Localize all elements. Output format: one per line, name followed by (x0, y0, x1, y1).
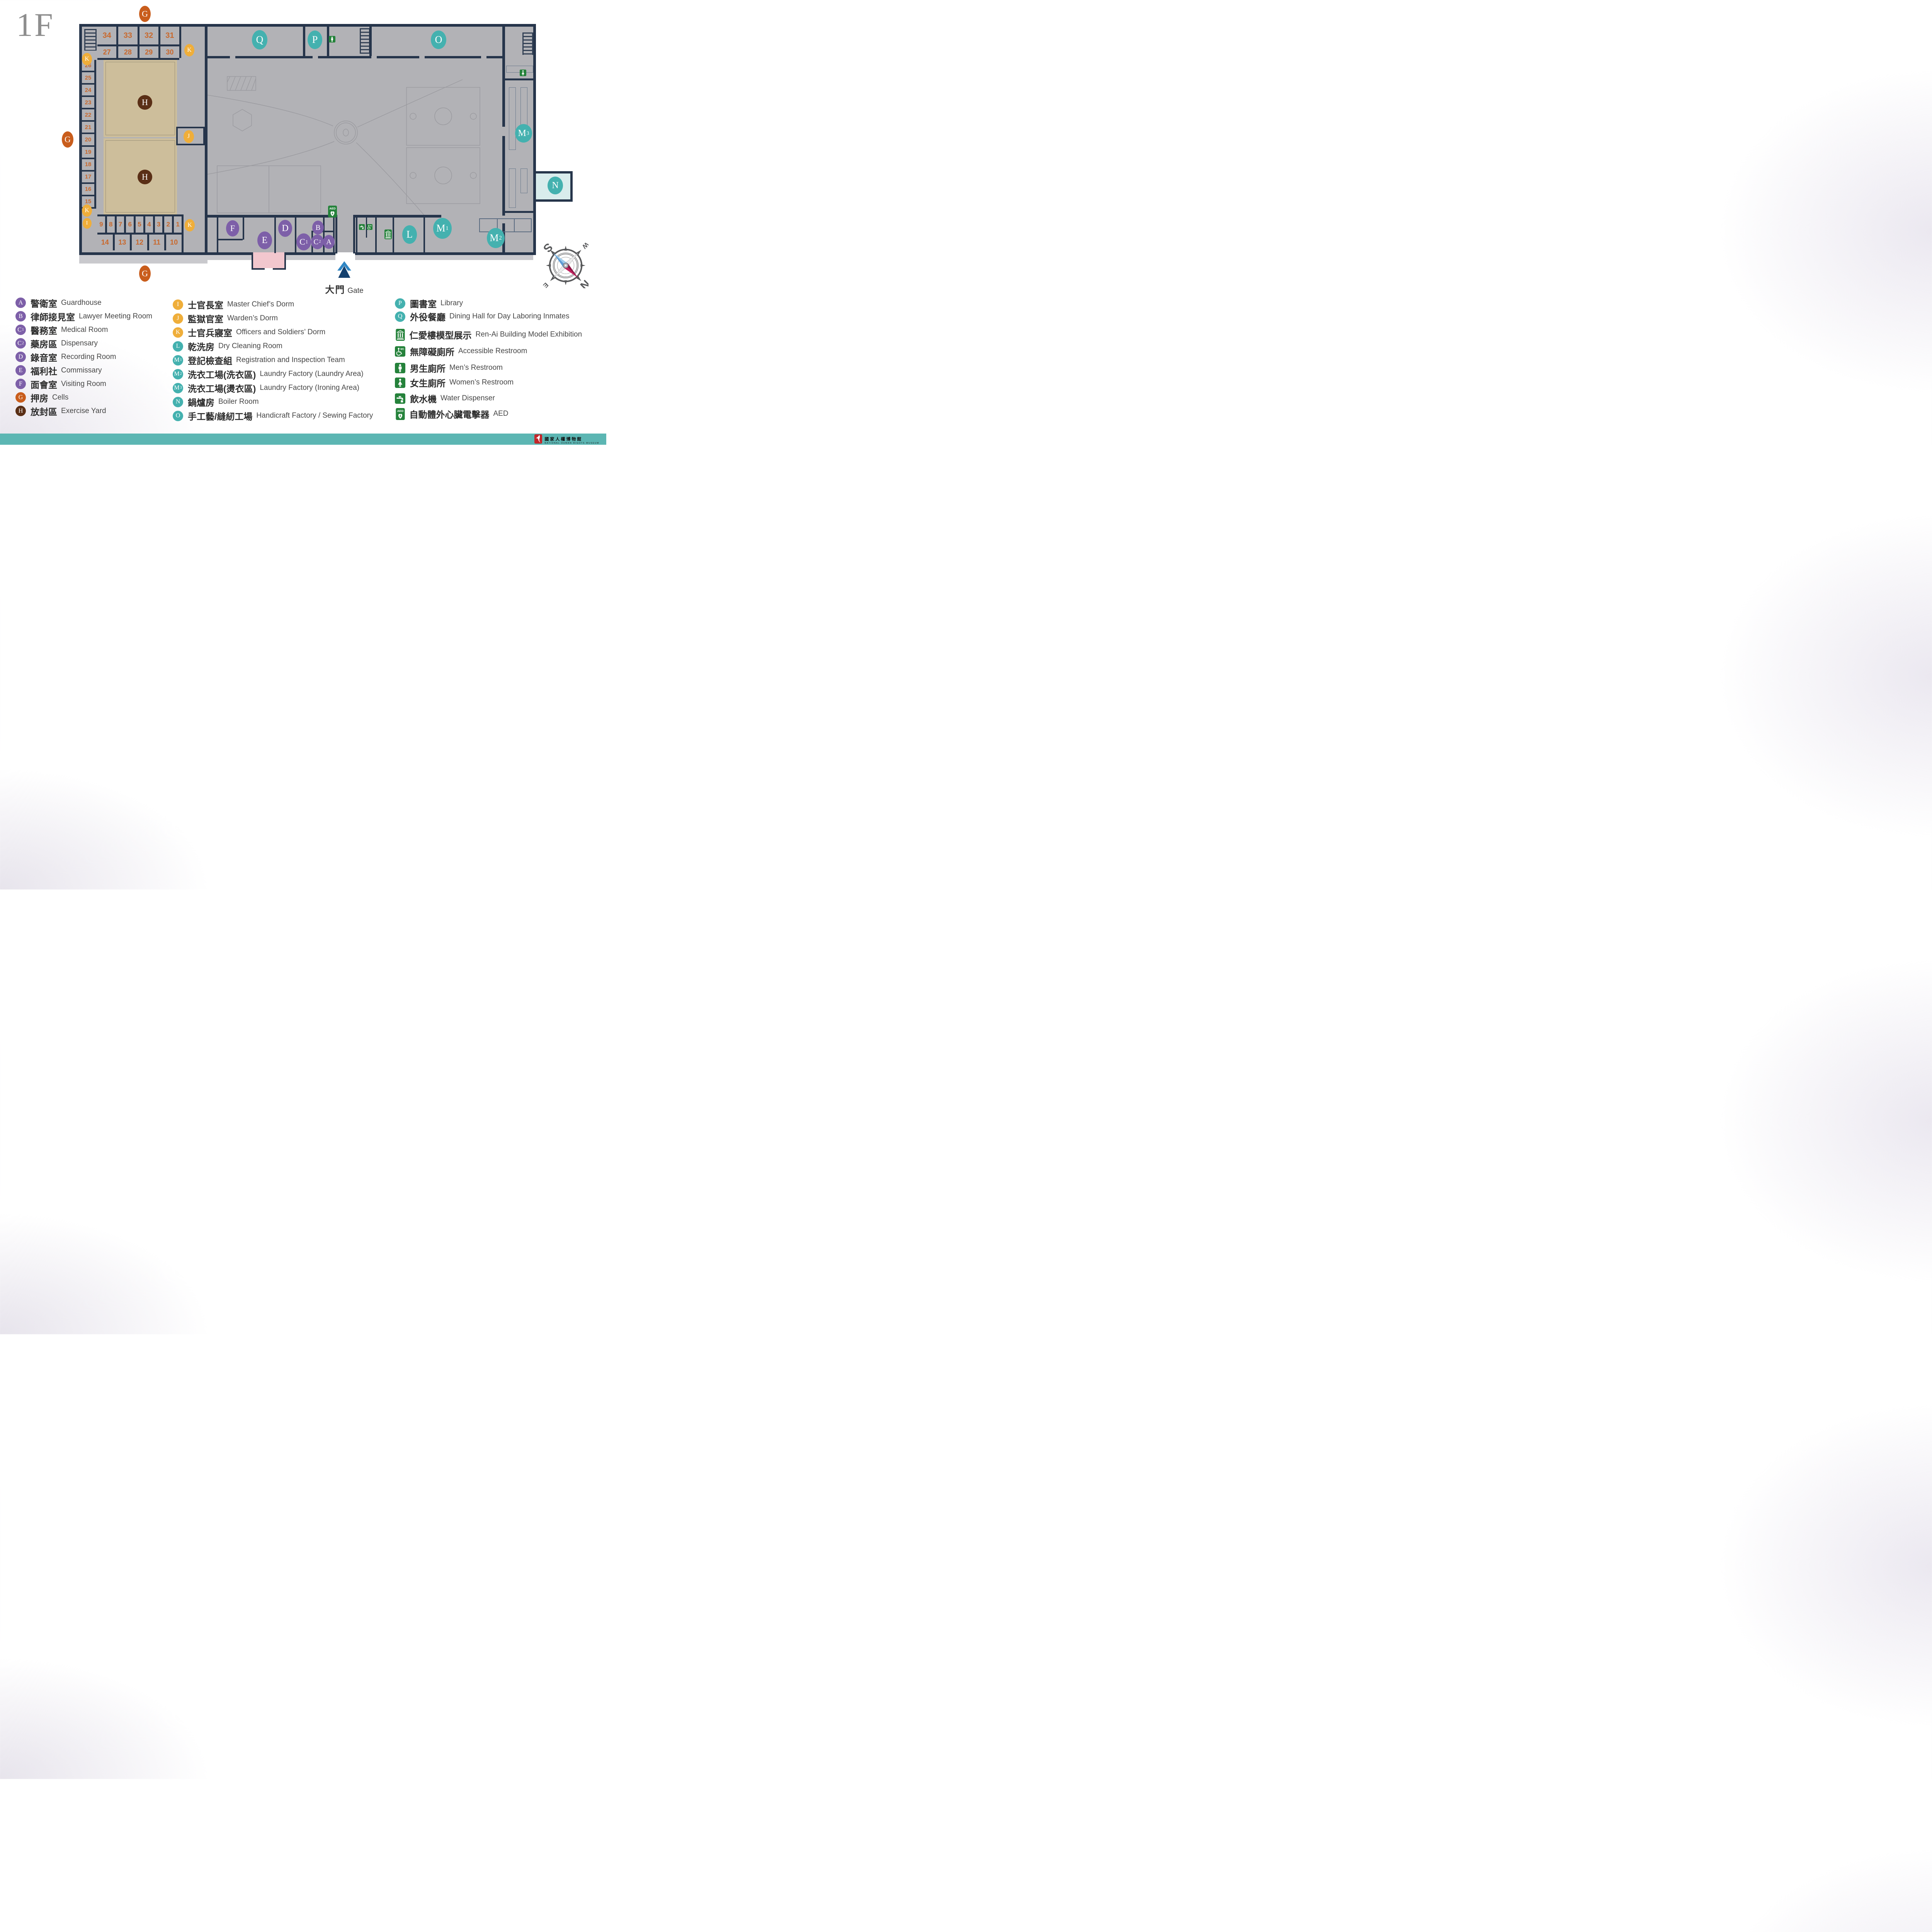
aed-icon: AED (328, 206, 337, 218)
legend-badge-l: L (173, 341, 183, 352)
cell-column-26-15: 262524232221201918171615 (82, 60, 94, 209)
wall (354, 215, 441, 218)
legend-badge-d: D (15, 352, 26, 362)
map-marker-g: G (139, 6, 151, 22)
legend-badge-k: K (173, 327, 183, 338)
wall (425, 56, 481, 58)
wall (355, 252, 536, 255)
water-dispenser-icon (359, 224, 365, 230)
wall (274, 218, 276, 253)
legend-badge-e: E (15, 365, 26, 376)
legend-label-en: Master Chief’s Dorm (227, 300, 294, 309)
legend-item-visiting-room: F面會室Visiting Room (15, 377, 152, 391)
sidewalk (355, 255, 533, 260)
legend-label-zh: 女生廁所 (410, 376, 446, 389)
marker-letter: M (490, 233, 498, 243)
legend-badge-letter: I (177, 301, 179, 308)
legend-label-en: Commissary (61, 366, 102, 375)
wall (252, 252, 253, 270)
legend-badge-c2: C2 (15, 338, 26, 349)
legend-label-en: Dry Cleaning Room (218, 342, 282, 350)
legend-badge-m1: M1 (173, 355, 183, 366)
legend-badge-letter: M (174, 385, 179, 391)
legend-badge-letter: C (17, 340, 22, 347)
cell-row-14-10: 1413121110 (97, 235, 182, 250)
wall (377, 56, 419, 58)
compass-rose: N S E W NE SE SW NW (543, 243, 588, 288)
legend-label-en: Guardhouse (61, 299, 102, 307)
cell-number: 2 (164, 216, 174, 233)
marker-letter-sub: 1 (446, 226, 448, 231)
legend-label-zh: 男生廁所 (410, 361, 446, 374)
legend-label-zh: 洗衣工場(洗衣區) (188, 367, 256, 381)
wall (79, 252, 252, 255)
legend-label-en: Warden’s Dorm (227, 314, 278, 323)
map-marker-k: K (82, 204, 92, 217)
legend-badge-letter: H (19, 408, 23, 414)
legend-badge-letter: C (17, 327, 22, 333)
marker-letter: I (86, 221, 88, 226)
wall (273, 268, 286, 270)
marker-letter: M (436, 223, 445, 233)
marker-letter: A (326, 238, 332, 246)
wall (217, 218, 218, 253)
wall (295, 218, 296, 253)
wall (570, 171, 573, 202)
cell-number: 19 (82, 147, 94, 159)
map-marker-j: J (184, 130, 194, 143)
legend-badge-g: G (15, 392, 26, 403)
museum-icon (384, 229, 392, 240)
legend-item-recording-room: D錄音室Recording Room (15, 350, 152, 364)
legend-label-en: Officers and Soldiers’ Dorm (236, 328, 325, 337)
marker-letter: C (314, 238, 319, 246)
wall (505, 211, 533, 213)
legend-label-zh: 手工藝/縫紉工場 (188, 409, 252, 422)
legend-label-zh: 錄音室 (31, 350, 57, 364)
museum-icon (396, 329, 405, 341)
aed-icon: AED (396, 408, 405, 420)
cell-number: 20 (82, 134, 94, 146)
legend-label-en: Men’s Restroom (449, 364, 503, 372)
marker-letter: L (406, 230, 413, 240)
legend-badge-i: I (173, 299, 183, 310)
map-marker-n: N (548, 177, 563, 194)
legend-label-en: Cells (52, 393, 68, 402)
legend-badge-sub: 2 (180, 372, 182, 376)
wall (333, 218, 335, 253)
wall (393, 218, 394, 253)
svg-text:WC: WC (370, 225, 372, 226)
legend-item-lawyer-meeting-room: B律師接見室Lawyer Meeting Room (15, 310, 152, 323)
compass-e: E (543, 281, 550, 288)
cell-row-9-1: 987654321 (97, 216, 182, 235)
marker-letter: K (187, 47, 192, 53)
legend-column-3: P圖書室LibraryQ外役餐廳Dining Hall for Day Labo… (395, 297, 582, 420)
legend-column-1: A警衛室GuardhouseB律師接見室Lawyer Meeting RoomC… (15, 296, 152, 418)
legend-item-exercise-yard: H放封區Exercise Yard (15, 404, 152, 418)
cell-number: 11 (149, 235, 167, 250)
cell-number: 29 (139, 46, 160, 58)
legend-item-women-s-restroom: 女生廁所Women’s Restroom (395, 376, 582, 389)
legend-label-en: Accessible Restroom (458, 347, 527, 355)
women-restroom-icon (520, 70, 526, 76)
cell-number: 3 (155, 216, 165, 233)
legend-label-en: Ren-Ai Building Model Exhibition (476, 330, 582, 339)
stairs-icon (522, 32, 533, 55)
wall (284, 252, 286, 270)
legend-badge-letter: M (174, 357, 179, 363)
legend-label-en: Medical Room (61, 326, 108, 334)
marker-letter-sub: 2 (319, 240, 321, 244)
wall (505, 78, 533, 80)
marker-letter: M (518, 129, 526, 138)
cell-number: 32 (139, 27, 160, 44)
marker-letter: Q (256, 35, 264, 45)
wall (502, 136, 505, 216)
legend-item-ren-ai-building-model-exhibition: 仁愛樓模型展示Ren-Ai Building Model Exhibition (395, 328, 582, 341)
legend-badge-h: H (15, 406, 26, 416)
svg-text:AED: AED (329, 207, 336, 210)
marker-letter: G (65, 135, 71, 144)
legend-badge-letter: J (177, 315, 179, 321)
legend-badge-m2: M2 (173, 369, 183, 379)
cell-number: 25 (82, 72, 94, 85)
table-outline (509, 168, 516, 208)
legend-label-zh: 面會室 (31, 378, 57, 391)
map-marker-q: Q (252, 30, 267, 49)
marker-letter: E (262, 236, 268, 245)
legend-item-cells: G押房Cells (15, 391, 152, 404)
marker-letter: J (187, 133, 190, 139)
legend-label-zh: 監獄官室 (188, 312, 223, 325)
legend-badge-letter: P (398, 300, 402, 306)
legend-label-en: Dining Hall for Day Laboring Inmates (449, 312, 570, 321)
legend-label-zh: 洗衣工場(燙衣區) (188, 381, 256, 395)
legend-badge-letter: L (176, 343, 180, 349)
marker-letter: O (435, 35, 442, 45)
cell-row-27-30: 27282930 (97, 46, 179, 60)
wall (252, 268, 265, 270)
accessible-restroom-icon: WC (395, 346, 405, 357)
wall (536, 199, 573, 202)
legend-badge-letter: A (19, 300, 23, 306)
map-marker-g: G (62, 131, 73, 148)
wall (207, 56, 230, 58)
legend-label-en: Handicraft Factory / Sewing Factory (256, 412, 373, 420)
map-marker-l: L (402, 225, 417, 244)
map-marker-k: K (185, 219, 195, 231)
wall (182, 214, 184, 252)
marker-letter: B (316, 224, 321, 231)
cell-number: 28 (118, 46, 139, 58)
wall (286, 252, 335, 255)
wall (318, 56, 371, 58)
legend-badge-sub: 1 (22, 328, 24, 332)
legend-label-zh: 士官兵寢室 (188, 326, 232, 339)
marker-letter: D (282, 224, 288, 233)
map-marker-h: H (138, 95, 152, 110)
legend-badge-c1: C1 (15, 325, 26, 335)
map-marker-e: E (257, 231, 272, 249)
legend-item-officers-and-soldiers-dorm: K士官兵寢室Officers and Soldiers’ Dorm (173, 325, 373, 339)
marker-letter: N (552, 181, 558, 190)
marker-letter: P (312, 35, 318, 45)
men-restroom-icon (395, 363, 405, 373)
legend-label-zh: 登記檢查組 (188, 354, 232, 367)
gate-label-en: Gate (347, 287, 363, 295)
legend-item-library: P圖書室Library (395, 297, 582, 310)
legend-badge-letter: G (19, 395, 23, 401)
gate-arrow-icon (337, 261, 351, 278)
legend-badge-f: F (15, 379, 26, 389)
legend-label-en: Exercise Yard (61, 407, 106, 415)
legend-item-handicraft-factory-sewing-factory: O手工藝/縫紉工場Handicraft Factory / Sewing Fac… (173, 409, 373, 423)
wall (323, 218, 325, 253)
map-marker-g: G (139, 265, 151, 282)
legend-badge-j: J (173, 313, 183, 324)
wall (423, 218, 425, 253)
marker-letter-sub: 1 (306, 240, 308, 244)
stairs-icon (360, 28, 370, 54)
marker-letter: K (85, 56, 89, 62)
room-e-annex (253, 252, 284, 268)
cell-number: 12 (132, 235, 149, 250)
wall (179, 27, 181, 58)
legend-label-zh: 飲水機 (410, 392, 437, 405)
legend-badge-letter: O (176, 413, 180, 419)
legend-badge-letter: D (19, 354, 23, 360)
legend-label-zh: 乾洗房 (188, 340, 214, 353)
legend-label-zh: 藥房區 (31, 337, 57, 350)
wall (533, 24, 536, 255)
table-outline (520, 87, 527, 127)
marker-letter-sub: 2 (499, 235, 502, 241)
cell-number: 17 (82, 172, 94, 184)
museum-logo: 國家人權博物館 NATIONAL HUMAN RIGHTS MUSEUM (534, 434, 599, 446)
legend-badge-m3: M3 (173, 383, 183, 393)
wall (353, 215, 355, 253)
cell-number: 4 (145, 216, 155, 233)
wall (79, 24, 82, 255)
accessible-restroom-icon: WC (367, 224, 372, 230)
gate-label: 大門Gate (311, 282, 377, 296)
legend-badge-o: O (173, 411, 183, 421)
gate-label-zh: 大門 (325, 285, 345, 295)
legend-badge-q: Q (395, 311, 405, 322)
men-restroom-icon (329, 36, 335, 43)
cell-number: 18 (82, 159, 94, 172)
legend-label-en: Boiler Room (218, 398, 259, 406)
map-marker-k: K (82, 53, 92, 65)
legend-badge-sub: 1 (180, 358, 182, 362)
legend-label-zh: 福利社 (31, 364, 57, 377)
footer-strip: 國家人權博物館 NATIONAL HUMAN RIGHTS MUSEUM (0, 434, 606, 445)
marker-letter: G (142, 10, 148, 18)
legend-badge-letter: K (176, 329, 180, 335)
map-marker-d: D (278, 220, 292, 237)
legend-label-zh: 押房 (31, 391, 48, 404)
marker-letter: G (142, 269, 148, 278)
legend-label-zh: 自動體外心臟電擊器 (410, 407, 490, 420)
legend-label-zh: 警衛室 (31, 296, 57, 310)
compass-w: W (581, 243, 588, 250)
marker-letter-sub: 3 (527, 131, 529, 136)
stairs-icon (84, 29, 97, 51)
legend-label-en: AED (493, 410, 509, 418)
legend-label-en: Lawyer Meeting Room (79, 312, 152, 321)
marker-letter: K (85, 207, 89, 214)
museum-name-en: NATIONAL HUMAN RIGHTS MUSEUM (544, 442, 599, 444)
marker-letter: H (142, 98, 148, 107)
legend-badge-letter: N (176, 399, 180, 405)
legend-item-dry-cleaning-room: L乾洗房Dry Cleaning Room (173, 339, 373, 353)
legend-label-zh: 仁愛樓模型展示 (410, 328, 472, 341)
map-marker-c2: C2 (311, 235, 324, 249)
water-dispenser-icon (395, 393, 405, 404)
map-marker-a: A (323, 235, 335, 249)
map-marker-i: I (83, 218, 92, 229)
map-marker-m2: M2 (487, 228, 505, 248)
legend-item-medical-room: C1醫務室Medical Room (15, 323, 152, 337)
legend-badge-letter: E (19, 367, 23, 374)
legend-item-warden-s-dorm: J監獄官室Warden’s Dorm (173, 311, 373, 325)
wall (94, 60, 96, 209)
svg-text:AED: AED (397, 409, 403, 413)
legend-item-laundry-factory-ironing-area: M3洗衣工場(燙衣區)Laundry Factory (Ironing Area… (173, 381, 373, 395)
legend-item-commissary: E福利社Commissary (15, 364, 152, 377)
legend-label-zh: 外役餐廳 (410, 310, 446, 323)
map-marker-k: K (184, 44, 194, 56)
cell-number: 9 (97, 216, 107, 233)
wall (97, 214, 182, 216)
cell-row-34-31: 34333231 (97, 27, 179, 46)
table-outline (509, 87, 516, 150)
legend-column-2: I士官長室Master Chief’s DormJ監獄官室Warden’s Do… (173, 298, 373, 423)
cell-number: 13 (115, 235, 132, 250)
cell-number: 1 (174, 216, 182, 233)
legend-label-en: Dispensary (61, 339, 98, 348)
legend-label-zh: 律師接見室 (31, 310, 75, 323)
map-marker-o: O (431, 31, 446, 49)
legend-item-boiler-room: N鍋爐房Boiler Room (173, 395, 373, 409)
wall (536, 171, 573, 173)
legend-item-dispensary: C2藥房區Dispensary (15, 337, 152, 350)
cell-number: 14 (97, 235, 115, 250)
legend-badge-a: A (15, 298, 26, 308)
legend-label-zh: 無障礙廁所 (410, 345, 454, 358)
legend-label-en: Laundry Factory (Ironing Area) (260, 384, 359, 392)
map-marker-f: F (226, 220, 239, 236)
map-marker-p: P (308, 31, 322, 49)
wall (303, 27, 305, 56)
cell-number: 21 (82, 122, 94, 134)
wall (235, 56, 313, 58)
svg-text:WC: WC (400, 348, 405, 350)
cell-number: 33 (118, 27, 139, 44)
legend-badge-sub: 3 (180, 386, 182, 390)
wall (486, 56, 502, 58)
legend-item-accessible-restroom: WC無障礙廁所Accessible Restroom (395, 345, 582, 358)
cell-number: 24 (82, 85, 94, 97)
cell-number: 31 (160, 27, 179, 44)
legend-label-zh: 士官長室 (188, 298, 223, 311)
legend-label-zh: 放封區 (31, 405, 57, 418)
courtyard-decorations (207, 58, 503, 215)
legend-item-aed: AED自動體外心臟電擊器AED (395, 407, 582, 420)
legend-item-master-chief-s-dorm: I士官長室Master Chief’s Dorm (173, 298, 373, 311)
wall (79, 24, 536, 27)
legend-badge-letter: F (19, 381, 22, 387)
legend-badge-n: N (173, 397, 183, 407)
cell-number: 7 (117, 216, 126, 233)
legend-item-registration-and-inspection-team: M1登記檢查組Registration and Inspection Team (173, 353, 373, 367)
legend-item-dining-hall-for-day-laboring-inmates: Q外役餐廳Dining Hall for Day Laboring Inmate… (395, 310, 582, 323)
map-marker-h: H (138, 170, 152, 184)
wall (207, 215, 335, 218)
legend-label-zh: 鍋爐房 (188, 395, 214, 408)
legend-badge-p: P (395, 298, 405, 309)
wall (243, 218, 244, 240)
cell-number: 16 (82, 184, 94, 196)
legend-badge-letter: B (19, 313, 23, 320)
marker-letter: H (142, 173, 148, 181)
legend-label-en: Registration and Inspection Team (236, 356, 345, 364)
legend-label-en: Recording Room (61, 353, 116, 361)
marker-letter: C (299, 238, 305, 246)
map-marker-b: B (312, 221, 324, 235)
legend-item-guardhouse: A警衛室Guardhouse (15, 296, 152, 310)
legend-item-men-s-restroom: 男生廁所Men’s Restroom (395, 361, 582, 374)
legend-label-en: Water Dispenser (440, 394, 495, 403)
legend-item-laundry-factory-laundry-area: M2洗衣工場(洗衣區)Laundry Factory (Laundry Area… (173, 367, 373, 381)
cell-number: 27 (97, 46, 118, 58)
wall (502, 24, 505, 127)
legend-badge-letter: Q (398, 313, 403, 320)
wall (218, 239, 243, 240)
legend-label-en: Library (440, 299, 463, 308)
legend-label-en: Women’s Restroom (449, 378, 514, 387)
museum-name-zh: 國家人權博物館 (544, 436, 599, 442)
marker-letter: F (230, 224, 235, 233)
sidewalk (79, 255, 207, 264)
legend-badge-sub: 2 (22, 342, 24, 345)
women-restroom-icon (395, 378, 405, 388)
cell-number: 30 (160, 46, 179, 58)
cell-number: 23 (82, 97, 94, 109)
cell-number: 10 (166, 235, 182, 250)
cell-number: 22 (82, 109, 94, 122)
map-marker-m3: M3 (515, 124, 532, 143)
legend-label-en: Visiting Room (61, 380, 106, 388)
legend-badge-b: B (15, 311, 26, 321)
map-marker-c1: C1 (296, 233, 311, 250)
museum-logo-icon (534, 434, 542, 446)
legend-badge-letter: M (174, 371, 179, 377)
table-outline (514, 218, 532, 232)
cell-number: 6 (126, 216, 136, 233)
wall (335, 215, 337, 253)
legend-label-zh: 圖書室 (410, 297, 437, 310)
marker-letter: K (187, 222, 192, 228)
wall (375, 218, 377, 253)
legend-label-zh: 醫務室 (31, 323, 57, 337)
cell-number: 34 (97, 27, 118, 44)
map-marker-m1: M1 (433, 218, 452, 239)
wall (205, 24, 207, 255)
cell-number: 8 (107, 216, 117, 233)
legend-label-en: Laundry Factory (Laundry Area) (260, 370, 363, 378)
